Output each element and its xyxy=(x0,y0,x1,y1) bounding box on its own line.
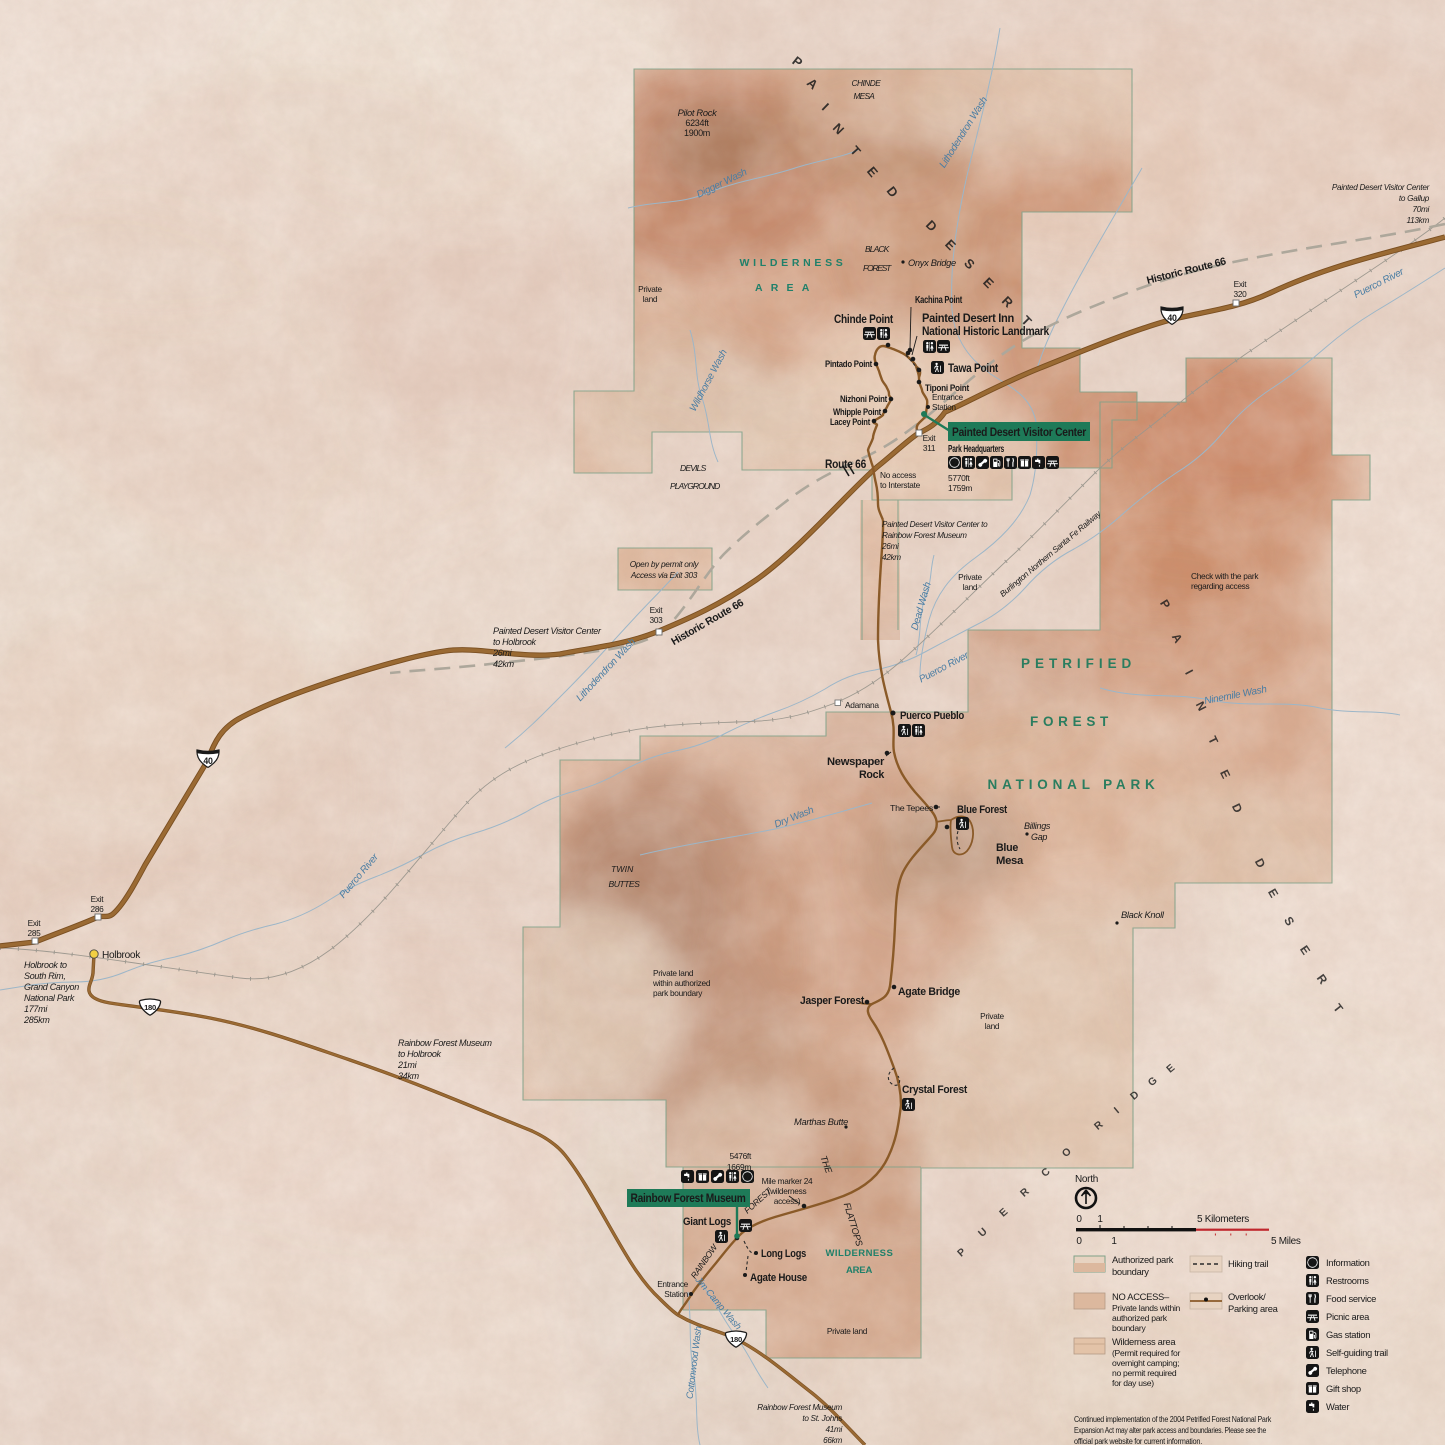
svg-text:113km: 113km xyxy=(1407,216,1430,225)
svg-text:North: North xyxy=(1075,1174,1098,1185)
svg-text:1: 1 xyxy=(1111,1236,1117,1247)
svg-text:for day use): for day use) xyxy=(1112,1378,1154,1388)
svg-text:to Gallup: to Gallup xyxy=(1399,194,1430,203)
svg-text:Check with the park: Check with the park xyxy=(1191,571,1259,581)
svg-text:Newspaper: Newspaper xyxy=(827,756,885,768)
svg-text:1759m: 1759m xyxy=(948,483,972,493)
svg-text:WILDERNESS: WILDERNESS xyxy=(740,257,843,269)
svg-text:5476ft: 5476ft xyxy=(730,1151,752,1161)
svg-text:Exit: Exit xyxy=(28,918,42,928)
svg-text:authorized park: authorized park xyxy=(1112,1313,1168,1323)
svg-text:Picnic area: Picnic area xyxy=(1326,1311,1370,1322)
svg-text:Crystal Forest: Crystal Forest xyxy=(902,1084,968,1096)
svg-text:Entrance: Entrance xyxy=(657,1279,688,1289)
svg-text:CHINDE: CHINDE xyxy=(852,78,882,88)
svg-text:Access via Exit 303: Access via Exit 303 xyxy=(630,570,698,580)
svg-text:0: 0 xyxy=(1076,1214,1082,1225)
svg-text:Tawa Point: Tawa Point xyxy=(948,363,998,375)
svg-text:land: land xyxy=(963,582,978,592)
svg-text:Rainbow Forest Museum: Rainbow Forest Museum xyxy=(631,1192,746,1205)
svg-text:Nizhoni Point: Nizhoni Point xyxy=(840,394,888,405)
svg-text:Painted Desert Inn: Painted Desert Inn xyxy=(922,313,1014,325)
svg-text:311: 311 xyxy=(923,443,936,453)
svg-text:AREA: AREA xyxy=(846,1265,872,1276)
svg-text:303: 303 xyxy=(650,615,664,625)
svg-text:WILDERNESS: WILDERNESS xyxy=(826,1248,893,1259)
svg-text:Information: Information xyxy=(1326,1257,1370,1268)
svg-text:Rainbow Forest Museum: Rainbow Forest Museum xyxy=(757,1403,842,1412)
svg-text:Gas station: Gas station xyxy=(1326,1329,1370,1340)
svg-text:MESA: MESA xyxy=(854,91,876,101)
svg-text:Station: Station xyxy=(932,402,956,412)
svg-text:land: land xyxy=(643,294,658,304)
svg-text:Onyx Bridge: Onyx Bridge xyxy=(908,258,956,268)
svg-text:land: land xyxy=(985,1021,1000,1031)
svg-text:regarding access: regarding access xyxy=(1191,581,1250,591)
svg-text:Painted Desert Visitor Center: Painted Desert Visitor Center to xyxy=(882,520,988,529)
svg-text:The Tepees: The Tepees xyxy=(890,803,933,813)
svg-text:Water: Water xyxy=(1326,1401,1349,1412)
svg-text:no permit required: no permit required xyxy=(1112,1368,1177,1378)
svg-text:Chinde Point: Chinde Point xyxy=(834,314,893,326)
svg-text:PETRIFIED: PETRIFIED xyxy=(1021,656,1132,671)
svg-text:Lacey Point: Lacey Point xyxy=(830,417,871,428)
svg-text:26mi: 26mi xyxy=(881,542,899,551)
svg-text:5 Kilometers: 5 Kilometers xyxy=(1197,1214,1249,1225)
svg-text:Open by permit only: Open by permit only xyxy=(630,559,700,569)
svg-text:Station: Station xyxy=(664,1289,688,1299)
svg-text:NO ACCESS–: NO ACCESS– xyxy=(1112,1291,1170,1302)
svg-text:Hiking trail: Hiking trail xyxy=(1228,1258,1268,1269)
svg-text:boundary: boundary xyxy=(1112,1266,1149,1277)
svg-text:Rainbow Forest Museum: Rainbow Forest Museum xyxy=(398,1038,493,1048)
svg-text:TWIN: TWIN xyxy=(611,864,634,874)
svg-text:Authorized park: Authorized park xyxy=(1112,1254,1174,1265)
svg-text:Mile marker 24: Mile marker 24 xyxy=(762,1176,813,1186)
svg-text:Holbrook: Holbrook xyxy=(102,950,141,961)
svg-text:Private: Private xyxy=(638,284,662,294)
svg-text:(wilderness: (wilderness xyxy=(768,1186,807,1196)
svg-text:Rock: Rock xyxy=(859,769,885,781)
svg-text:Private land: Private land xyxy=(653,968,694,978)
svg-text:Parking area: Parking area xyxy=(1228,1303,1279,1314)
svg-text:Entrance: Entrance xyxy=(932,392,963,402)
svg-text:to Holbrook: to Holbrook xyxy=(493,637,537,647)
svg-text:21mi: 21mi xyxy=(397,1060,418,1070)
svg-text:BUTTES: BUTTES xyxy=(609,879,641,889)
svg-text:Expansion Act may alter park a: Expansion Act may alter park access and … xyxy=(1074,1426,1267,1435)
svg-text:(Permit required for: (Permit required for xyxy=(1112,1348,1180,1358)
svg-text:286: 286 xyxy=(91,904,105,914)
svg-text:Giant Logs: Giant Logs xyxy=(683,1216,731,1228)
svg-text:5770ft: 5770ft xyxy=(948,473,970,483)
svg-text:Rainbow Forest Museum: Rainbow Forest Museum xyxy=(882,531,967,540)
svg-text:Wilderness area: Wilderness area xyxy=(1112,1336,1176,1347)
svg-text:BLACK: BLACK xyxy=(865,244,891,254)
svg-text:Painted Desert Visitor Center: Painted Desert Visitor Center xyxy=(493,626,602,636)
svg-text:1: 1 xyxy=(1097,1214,1103,1225)
svg-text:Private: Private xyxy=(958,572,982,582)
svg-text:Black Knoll: Black Knoll xyxy=(1121,910,1165,920)
svg-text:Long Logs: Long Logs xyxy=(761,1248,806,1260)
svg-text:Agate House: Agate House xyxy=(750,1272,807,1284)
svg-text:park boundary: park boundary xyxy=(653,988,703,998)
svg-text:34km: 34km xyxy=(398,1071,420,1081)
svg-text:Blue: Blue xyxy=(996,842,1018,854)
svg-text:Exit: Exit xyxy=(650,605,664,615)
svg-text:285km: 285km xyxy=(23,1015,50,1025)
svg-text:Puerco Pueblo: Puerco Pueblo xyxy=(900,710,965,722)
svg-text:overnight camping;: overnight camping; xyxy=(1112,1358,1179,1368)
svg-text:Gap: Gap xyxy=(1031,832,1047,842)
svg-text:to Interstate: to Interstate xyxy=(880,480,921,490)
svg-text:Grand Canyon: Grand Canyon xyxy=(24,982,79,992)
svg-text:Adamana: Adamana xyxy=(845,700,879,710)
svg-text:to Holbrook: to Holbrook xyxy=(398,1049,442,1059)
svg-text:285: 285 xyxy=(28,928,42,938)
svg-text:Continued implementation of th: Continued implementation of the 2004 Pet… xyxy=(1074,1415,1272,1424)
svg-text:177mi: 177mi xyxy=(24,1004,48,1014)
svg-text:Pilot Rock: Pilot Rock xyxy=(678,108,719,118)
svg-text:No access: No access xyxy=(880,470,916,480)
svg-text:42km: 42km xyxy=(493,659,515,669)
svg-text:within authorized: within authorized xyxy=(652,978,711,988)
svg-text:Park Headquarters: Park Headquarters xyxy=(948,444,1004,455)
svg-text:Exit: Exit xyxy=(1234,279,1248,289)
svg-text:70mi: 70mi xyxy=(1412,205,1429,214)
svg-text:Pintado Point: Pintado Point xyxy=(825,359,873,370)
svg-text:Agate Bridge: Agate Bridge xyxy=(898,986,960,998)
svg-text:PLAYGROUND: PLAYGROUND xyxy=(670,481,720,491)
svg-text:DEVILS: DEVILS xyxy=(680,463,707,473)
svg-text:South Rim,: South Rim, xyxy=(24,971,66,981)
svg-text:Marthas Butte: Marthas Butte xyxy=(794,1117,848,1127)
svg-text:42km: 42km xyxy=(882,553,901,562)
svg-text:66km: 66km xyxy=(823,1436,842,1445)
svg-text:Food service: Food service xyxy=(1326,1293,1376,1304)
svg-text:Billings: Billings xyxy=(1024,821,1051,831)
svg-text:6234ft: 6234ft xyxy=(685,118,709,128)
svg-text:Overlook/: Overlook/ xyxy=(1228,1291,1266,1302)
svg-text:Private lands within: Private lands within xyxy=(1112,1303,1181,1313)
svg-text:Jasper Forest: Jasper Forest xyxy=(800,995,865,1007)
svg-text:Private: Private xyxy=(980,1011,1004,1021)
svg-text:National Park: National Park xyxy=(24,993,75,1003)
svg-text:Self-guiding trail: Self-guiding trail xyxy=(1326,1347,1388,1358)
svg-text:Painted Desert Visitor Center: Painted Desert Visitor Center xyxy=(1332,183,1430,192)
svg-text:Telephone: Telephone xyxy=(1326,1365,1367,1376)
svg-text:1900m: 1900m xyxy=(684,128,710,138)
svg-text:5 Miles: 5 Miles xyxy=(1271,1236,1301,1247)
svg-text:Exit: Exit xyxy=(91,894,105,904)
svg-text:Kachina Point: Kachina Point xyxy=(915,295,963,306)
svg-text:Exit: Exit xyxy=(923,433,937,443)
svg-text:26mi: 26mi xyxy=(492,648,513,658)
svg-text:Route 66: Route 66 xyxy=(825,459,866,471)
svg-text:Holbrook to: Holbrook to xyxy=(24,960,67,970)
svg-text:0: 0 xyxy=(1076,1236,1082,1247)
svg-text:Mesa: Mesa xyxy=(996,855,1024,867)
svg-text:FOREST: FOREST xyxy=(863,263,892,273)
svg-text:to St. Johns: to St. Johns xyxy=(802,1414,842,1423)
svg-text:official park website for curr: official park website for current inform… xyxy=(1074,1437,1202,1445)
svg-text:National Historic Landmark: National Historic Landmark xyxy=(922,326,1050,338)
svg-text:boundary: boundary xyxy=(1112,1323,1146,1333)
svg-text:320: 320 xyxy=(1234,289,1248,299)
svg-text:access): access) xyxy=(774,1196,801,1206)
svg-text:Restrooms: Restrooms xyxy=(1326,1275,1369,1286)
svg-text:Blue Forest: Blue Forest xyxy=(957,804,1008,816)
svg-text:Gift shop: Gift shop xyxy=(1326,1383,1361,1394)
svg-text:Private land: Private land xyxy=(827,1326,868,1336)
svg-text:41mi: 41mi xyxy=(825,1425,842,1434)
svg-text:Painted Desert Visitor Center: Painted Desert Visitor Center xyxy=(952,425,1086,439)
